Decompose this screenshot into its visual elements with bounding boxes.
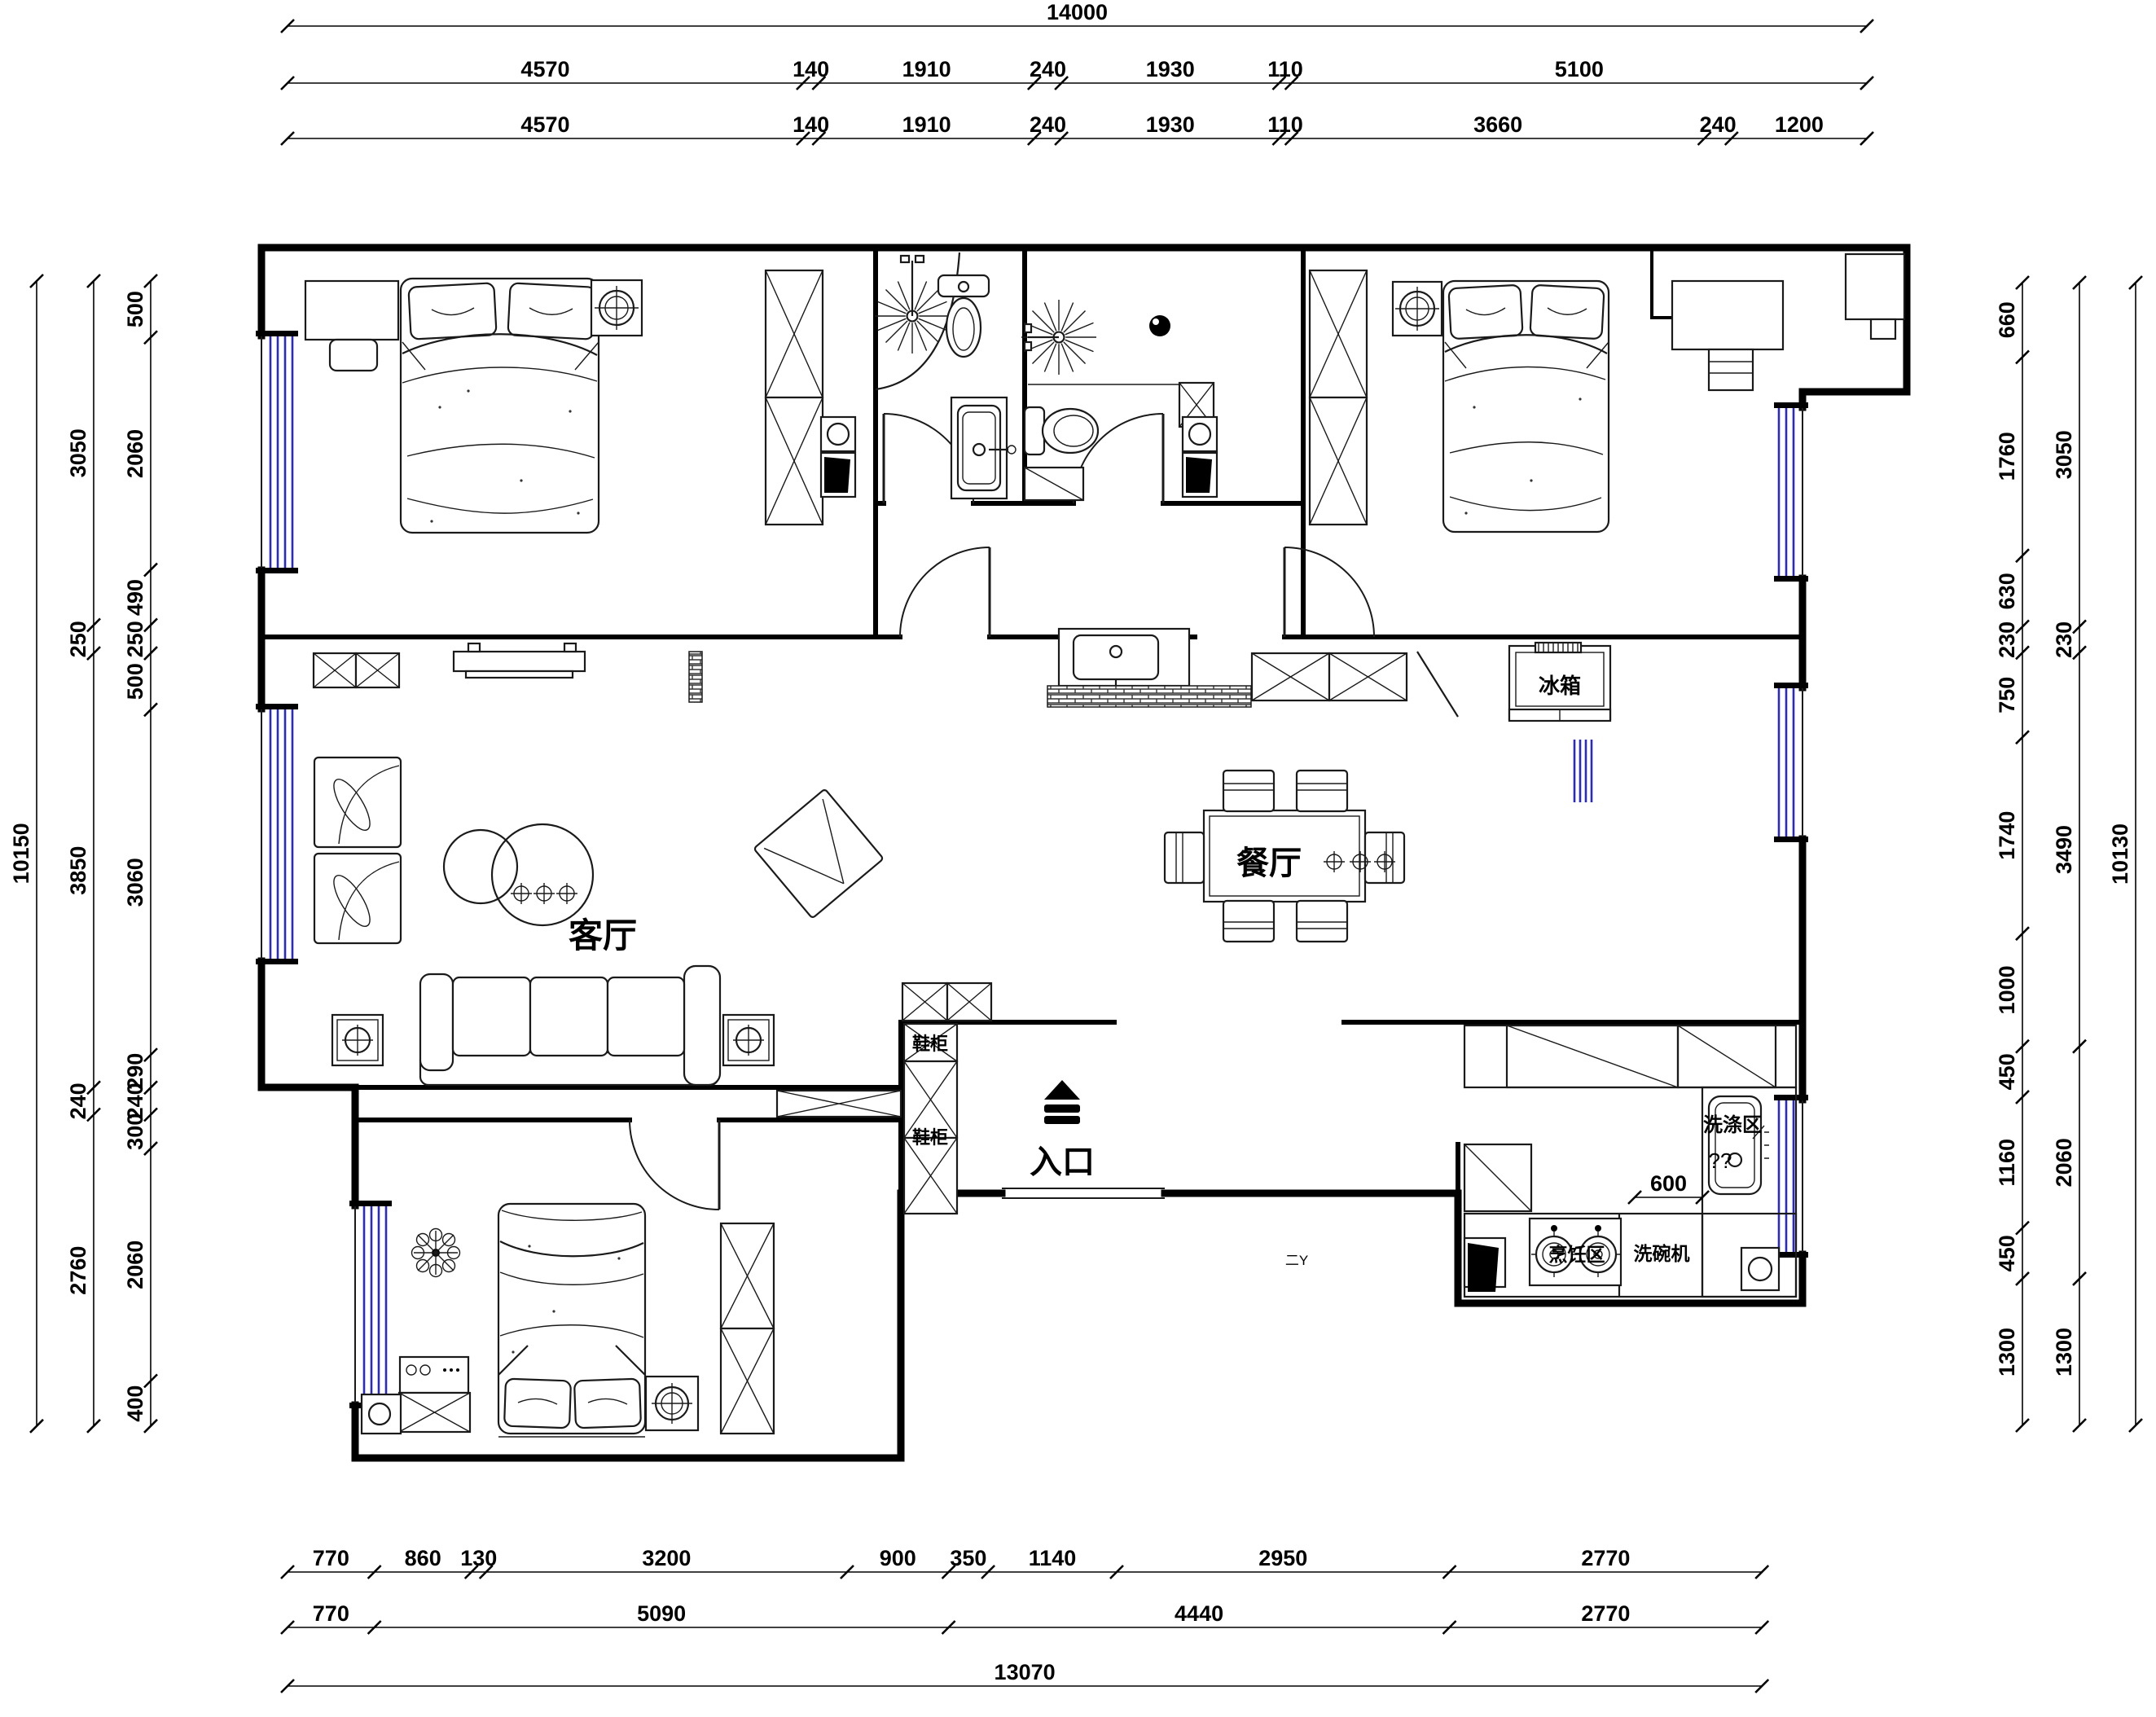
svg-text:1910: 1910 (902, 112, 951, 137)
label-shoe-cabinet-upper: 鞋柜 (912, 1034, 948, 1054)
label-fridge: 冰箱 (1539, 674, 1581, 698)
svg-text:1300: 1300 (2052, 1328, 2076, 1377)
label-survey-mark: 二Y (1285, 1253, 1308, 1268)
svg-text:770: 770 (313, 1601, 349, 1626)
label-cooking-area: 烹饪区 (1549, 1244, 1605, 1265)
svg-text:400: 400 (123, 1385, 147, 1422)
nightstand-lamp (1393, 282, 1442, 336)
corner-unit (362, 1394, 401, 1434)
svg-text:2770: 2770 (1581, 1601, 1630, 1626)
label-shoe-cabinet-lower: 鞋柜 (912, 1127, 948, 1148)
utility-cabinets (1183, 417, 1217, 497)
armchair-1 (314, 757, 401, 847)
svg-text:750: 750 (1995, 677, 2019, 714)
svg-text:3050: 3050 (2052, 430, 2076, 479)
svg-text:450: 450 (1995, 1235, 2019, 1271)
svg-text:1740: 1740 (1995, 811, 2019, 860)
svg-text:4570: 4570 (520, 112, 569, 137)
svg-text:2060: 2060 (123, 429, 147, 478)
wardrobe (721, 1223, 774, 1434)
svg-text:3060: 3060 (123, 858, 147, 907)
kitchen-sink (1709, 1096, 1769, 1194)
utility-cabinets (821, 417, 855, 497)
label-living-room: 客厅 (569, 916, 637, 955)
wardrobe (1310, 270, 1367, 525)
svg-text:3850: 3850 (66, 846, 90, 895)
svg-text:2950: 2950 (1258, 1546, 1307, 1570)
svg-text:3050: 3050 (66, 428, 90, 477)
svg-text:140: 140 (793, 57, 829, 81)
svg-text:3200: 3200 (642, 1546, 691, 1570)
svg-text:2060: 2060 (2052, 1138, 2076, 1187)
svg-text:4440: 4440 (1175, 1601, 1223, 1626)
svg-text:14000: 14000 (1047, 0, 1108, 24)
label-dishwasher: 洗碗机 (1634, 1243, 1690, 1264)
nightstand-lamp (591, 280, 642, 336)
svg-text:350: 350 (950, 1546, 986, 1570)
nightstand-lamp (646, 1377, 698, 1430)
svg-text:2060: 2060 (123, 1241, 147, 1289)
svg-text:1160: 1160 (1995, 1139, 2019, 1187)
sofa (420, 966, 720, 1085)
svg-text:10150: 10150 (9, 823, 33, 884)
tv-cabinet (314, 653, 399, 687)
svg-text:250: 250 (123, 621, 147, 657)
svg-text:1930: 1930 (1146, 57, 1195, 81)
svg-text:10130: 10130 (2108, 823, 2132, 885)
svg-text:500: 500 (123, 663, 147, 700)
svg-text:900: 900 (880, 1546, 916, 1570)
svg-text:230: 230 (2052, 621, 2076, 658)
brick-pier (689, 652, 702, 702)
svg-text:13070: 13070 (995, 1660, 1056, 1684)
svg-text:240: 240 (1030, 57, 1066, 81)
svg-text:1930: 1930 (1146, 112, 1195, 137)
svg-text:3490: 3490 (2052, 825, 2076, 874)
svg-text:500: 500 (123, 291, 147, 327)
spotlights (511, 883, 577, 904)
double-bed (498, 1204, 645, 1437)
svg-text:110: 110 (1267, 57, 1303, 81)
floor-plan-canvas: 1400045701401910240193011051004570140191… (0, 0, 2156, 1717)
svg-text:5090: 5090 (637, 1601, 686, 1626)
svg-text:2760: 2760 (66, 1246, 90, 1295)
svg-text:230: 230 (1995, 621, 2019, 658)
side-table-left (332, 1015, 383, 1065)
svg-text:130: 130 (460, 1546, 497, 1570)
svg-text:600: 600 (1650, 1171, 1687, 1196)
svg-text:1300: 1300 (1995, 1328, 2019, 1377)
living-room-window (256, 704, 298, 964)
ceiling-fan-icon (412, 1229, 460, 1277)
label-washing-area-note: ?? (1709, 1148, 1732, 1173)
svg-text:300: 300 (123, 1113, 147, 1150)
svg-text:660: 660 (1995, 301, 2019, 338)
svg-text:250: 250 (66, 621, 90, 657)
svg-text:770: 770 (313, 1546, 349, 1570)
svg-text:240: 240 (1700, 112, 1737, 137)
label-entrance: 入口 (1030, 1144, 1095, 1180)
svg-text:3660: 3660 (1473, 112, 1522, 137)
armchair-2 (314, 854, 401, 943)
svg-text:490: 490 (123, 579, 147, 616)
dresser (399, 1357, 470, 1432)
bedroom1-window (256, 331, 298, 573)
svg-text:1000: 1000 (1995, 965, 2019, 1014)
svg-text:240: 240 (66, 1082, 90, 1119)
small-cabinet (1741, 1248, 1779, 1290)
svg-text:1140: 1140 (1029, 1546, 1077, 1570)
svg-text:240: 240 (1030, 112, 1066, 137)
svg-text:1200: 1200 (1775, 112, 1824, 137)
wardrobe (766, 270, 823, 525)
label-washing-area: 洗涤区 (1703, 1114, 1762, 1136)
label-dining-room: 餐厅 (1236, 845, 1302, 881)
svg-text:110: 110 (1267, 112, 1303, 137)
spotlights (1324, 851, 1395, 872)
svg-text:1760: 1760 (1995, 432, 2019, 481)
svg-text:450: 450 (1995, 1053, 2019, 1090)
svg-text:4570: 4570 (520, 57, 569, 81)
svg-text:5100: 5100 (1555, 57, 1604, 81)
svg-text:140: 140 (793, 112, 829, 137)
side-table-right (723, 1015, 774, 1065)
floor-plan-drawing: 1400045701401910240193011051004570140191… (0, 0, 2156, 1717)
storage-closet (777, 1091, 901, 1117)
bedroom3-window (349, 1201, 392, 1408)
corner-dark-cabinet (1464, 1238, 1505, 1292)
sink-cabinet (951, 397, 1016, 498)
toilet (1025, 407, 1098, 455)
double-bed (1443, 281, 1609, 532)
corner-cabinet (902, 983, 991, 1021)
svg-text:860: 860 (405, 1546, 441, 1570)
svg-text:1910: 1910 (902, 57, 951, 81)
svg-text:630: 630 (1995, 573, 2019, 609)
svg-text:2770: 2770 (1581, 1546, 1630, 1570)
double-bed (401, 279, 599, 533)
